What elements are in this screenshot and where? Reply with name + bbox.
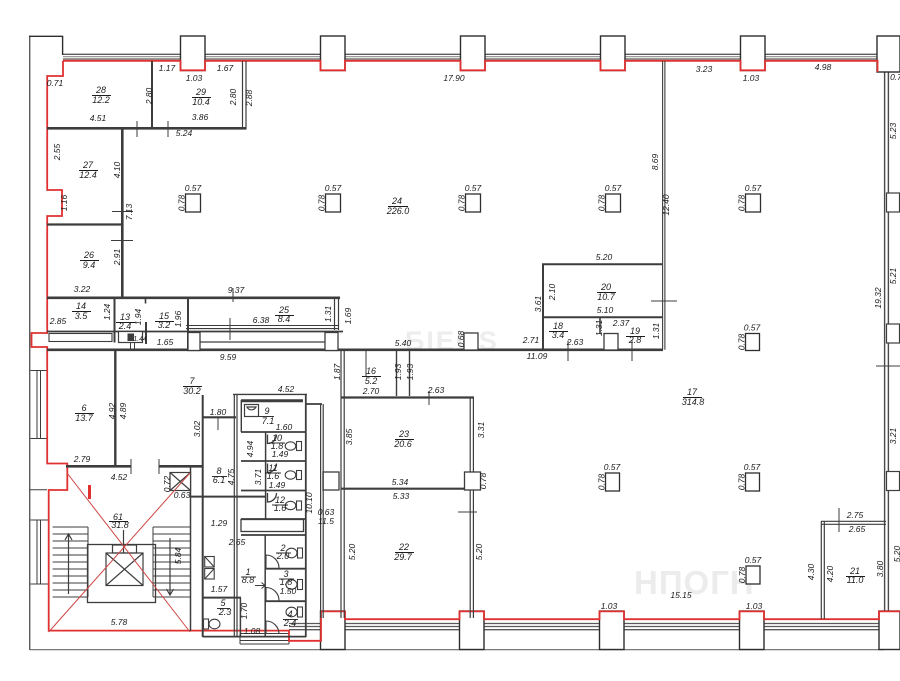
svg-text:0.57: 0.57 — [744, 323, 761, 333]
svg-text:29.7: 29.7 — [393, 552, 413, 562]
svg-text:14: 14 — [76, 301, 86, 311]
svg-text:9: 9 — [264, 406, 269, 416]
svg-text:2.79: 2.79 — [73, 454, 91, 464]
svg-text:12.40: 12.40 — [661, 194, 671, 216]
svg-text:1.08: 1.08 — [244, 626, 261, 636]
svg-text:2.63: 2.63 — [427, 385, 445, 395]
svg-text:5.24: 5.24 — [176, 128, 193, 138]
svg-text:4.92: 4.92 — [107, 402, 117, 419]
svg-text:0.78: 0.78 — [597, 194, 607, 211]
svg-text:5.40: 5.40 — [395, 338, 412, 348]
svg-text:2.55: 2.55 — [52, 143, 62, 161]
svg-text:12.2: 12.2 — [92, 95, 110, 105]
svg-text:4.98: 4.98 — [815, 62, 832, 72]
svg-text:1.57: 1.57 — [211, 584, 228, 594]
svg-text:1.31: 1.31 — [651, 322, 661, 339]
svg-text:1.31: 1.31 — [323, 305, 333, 322]
svg-text:1.17: 1.17 — [159, 63, 176, 73]
svg-text:1.16: 1.16 — [59, 194, 69, 211]
svg-text:3.22: 3.22 — [74, 284, 91, 294]
svg-text:2.37: 2.37 — [612, 318, 630, 328]
svg-text:0.57: 0.57 — [465, 183, 482, 193]
svg-text:26: 26 — [83, 250, 94, 260]
svg-text:3.02: 3.02 — [192, 420, 202, 437]
svg-text:9.4: 9.4 — [83, 260, 96, 270]
svg-text:8.8: 8.8 — [242, 575, 255, 585]
svg-text:13.7: 13.7 — [75, 413, 94, 423]
svg-text:28: 28 — [95, 85, 106, 95]
svg-text:2.71: 2.71 — [522, 335, 540, 345]
svg-text:2.80: 2.80 — [144, 87, 154, 105]
svg-text:27: 27 — [82, 160, 94, 170]
svg-text:314.8: 314.8 — [682, 397, 705, 407]
svg-text:2.80: 2.80 — [228, 88, 238, 106]
svg-text:17.90: 17.90 — [443, 73, 465, 83]
svg-text:4.52: 4.52 — [278, 384, 295, 394]
svg-text:0.78: 0.78 — [317, 194, 327, 211]
svg-text:20: 20 — [600, 282, 611, 292]
svg-text:2.88: 2.88 — [244, 89, 254, 107]
svg-text:1.65: 1.65 — [157, 337, 174, 347]
svg-text:2.65: 2.65 — [228, 537, 246, 547]
svg-text:4.89: 4.89 — [118, 402, 128, 419]
svg-text:5.21: 5.21 — [888, 267, 898, 284]
svg-text:0.78: 0.78 — [457, 194, 467, 211]
svg-text:1.50: 1.50 — [280, 586, 297, 596]
svg-text:3.80: 3.80 — [875, 560, 885, 577]
svg-text:4.94: 4.94 — [245, 440, 255, 457]
svg-text:5.20: 5.20 — [596, 252, 613, 262]
svg-text:4.30: 4.30 — [806, 563, 816, 580]
svg-text:0.68: 0.68 — [456, 330, 466, 347]
svg-text:1.69: 1.69 — [343, 307, 353, 324]
svg-text:2.65: 2.65 — [848, 524, 866, 534]
svg-text:1.49: 1.49 — [272, 449, 289, 459]
svg-text:0.71: 0.71 — [47, 78, 64, 88]
svg-text:2.91: 2.91 — [112, 248, 122, 266]
svg-text:2.75: 2.75 — [846, 510, 864, 520]
svg-text:1.80: 1.80 — [210, 407, 227, 417]
svg-text:0.57: 0.57 — [605, 183, 622, 193]
svg-text:17: 17 — [687, 387, 698, 397]
svg-text:1.67: 1.67 — [217, 63, 234, 73]
svg-text:1.03: 1.03 — [743, 73, 760, 83]
svg-text:8.69: 8.69 — [650, 153, 660, 170]
svg-text:2.10: 2.10 — [547, 283, 557, 301]
svg-text:1.03: 1.03 — [746, 601, 763, 611]
svg-text:2.85: 2.85 — [49, 316, 67, 326]
svg-text:2.63: 2.63 — [566, 337, 584, 347]
svg-text:7.13: 7.13 — [124, 203, 134, 220]
svg-text:10.7: 10.7 — [597, 292, 616, 302]
svg-text:4.75: 4.75 — [226, 468, 236, 485]
svg-text:1.93: 1.93 — [405, 363, 415, 380]
svg-text:10.10: 10.10 — [304, 492, 314, 514]
svg-text:226.0: 226.0 — [386, 206, 410, 216]
svg-text:3.31: 3.31 — [476, 421, 486, 438]
svg-text:0.57: 0.57 — [325, 183, 342, 193]
svg-text:1.96: 1.96 — [173, 310, 183, 327]
svg-text:5.84: 5.84 — [173, 547, 183, 564]
svg-text:0.72: 0.72 — [162, 475, 172, 492]
svg-text:6.38: 6.38 — [253, 315, 270, 325]
svg-text:9.37: 9.37 — [228, 285, 245, 295]
svg-text:0.7: 0.7 — [890, 72, 900, 82]
svg-text:4.10: 4.10 — [112, 161, 122, 178]
svg-text:10.4: 10.4 — [192, 97, 210, 107]
svg-text:0.57: 0.57 — [604, 462, 621, 472]
svg-text:4.51: 4.51 — [90, 113, 107, 123]
svg-text:0.78: 0.78 — [597, 473, 607, 490]
svg-text:1.93: 1.93 — [393, 363, 403, 380]
svg-text:12.4: 12.4 — [79, 170, 97, 180]
svg-text:1.49: 1.49 — [269, 480, 286, 490]
svg-text:29: 29 — [195, 87, 206, 97]
svg-text:0.57: 0.57 — [744, 462, 761, 472]
svg-text:1.44: 1.44 — [133, 336, 147, 343]
svg-text:15.15: 15.15 — [670, 590, 692, 600]
svg-text:23: 23 — [398, 429, 409, 439]
svg-text:5.23: 5.23 — [888, 122, 898, 139]
svg-text:22: 22 — [398, 542, 409, 552]
svg-text:0.63: 0.63 — [174, 490, 191, 500]
svg-text:2.70: 2.70 — [362, 386, 380, 396]
svg-text:5.2: 5.2 — [365, 376, 378, 386]
svg-text:1.87: 1.87 — [332, 363, 342, 380]
svg-text:0.78: 0.78 — [737, 566, 747, 583]
svg-text:1.03: 1.03 — [186, 73, 203, 83]
svg-text:1.94: 1.94 — [133, 308, 143, 325]
svg-text:3.85: 3.85 — [344, 428, 354, 445]
svg-text:5.34: 5.34 — [392, 477, 409, 487]
svg-text:11.5: 11.5 — [318, 516, 334, 526]
svg-text:1.03: 1.03 — [601, 601, 618, 611]
svg-text:0.78: 0.78 — [478, 472, 488, 489]
svg-text:3.86: 3.86 — [192, 112, 209, 122]
svg-text:3.61: 3.61 — [533, 295, 543, 312]
svg-text:5.20: 5.20 — [474, 543, 484, 560]
svg-text:0.78: 0.78 — [737, 473, 747, 490]
svg-text:1.24: 1.24 — [102, 303, 112, 320]
svg-text:5.10: 5.10 — [597, 305, 614, 315]
svg-text:2.0: 2.0 — [276, 551, 290, 561]
svg-text:5.78: 5.78 — [111, 617, 128, 627]
svg-text:9.59: 9.59 — [220, 352, 237, 362]
svg-text:3.5: 3.5 — [75, 311, 89, 321]
svg-text:0.57: 0.57 — [185, 183, 202, 193]
svg-text:1.31: 1.31 — [594, 319, 604, 336]
svg-text:0.57: 0.57 — [745, 555, 762, 565]
svg-text:0.78: 0.78 — [737, 194, 747, 211]
svg-text:1.29: 1.29 — [211, 518, 228, 528]
svg-text:6: 6 — [81, 403, 86, 413]
svg-text:4.20: 4.20 — [825, 565, 835, 582]
svg-text:24: 24 — [391, 196, 402, 206]
svg-text:0.78: 0.78 — [177, 194, 187, 211]
svg-text:20.6: 20.6 — [393, 439, 412, 449]
svg-text:5.20: 5.20 — [892, 545, 900, 562]
svg-text:БIEOS: БIEOS — [405, 326, 499, 356]
svg-text:1.6: 1.6 — [274, 503, 287, 513]
svg-text:1.60: 1.60 — [276, 422, 293, 432]
svg-text:3.21: 3.21 — [888, 427, 898, 444]
svg-text:5.20: 5.20 — [347, 543, 357, 560]
svg-text:3.23: 3.23 — [696, 64, 713, 74]
svg-text:4.52: 4.52 — [111, 472, 128, 482]
svg-text:3.71: 3.71 — [253, 468, 263, 485]
svg-text:7.1: 7.1 — [262, 416, 275, 426]
svg-text:1.70: 1.70 — [239, 602, 249, 619]
svg-text:0.78: 0.78 — [737, 333, 747, 350]
svg-text:0.57: 0.57 — [745, 183, 762, 193]
svg-text:19.32: 19.32 — [873, 287, 883, 309]
svg-text:5.33: 5.33 — [393, 491, 410, 501]
svg-text:30.2: 30.2 — [183, 386, 201, 396]
svg-text:16: 16 — [366, 366, 376, 376]
svg-text:11.09: 11.09 — [527, 351, 548, 361]
